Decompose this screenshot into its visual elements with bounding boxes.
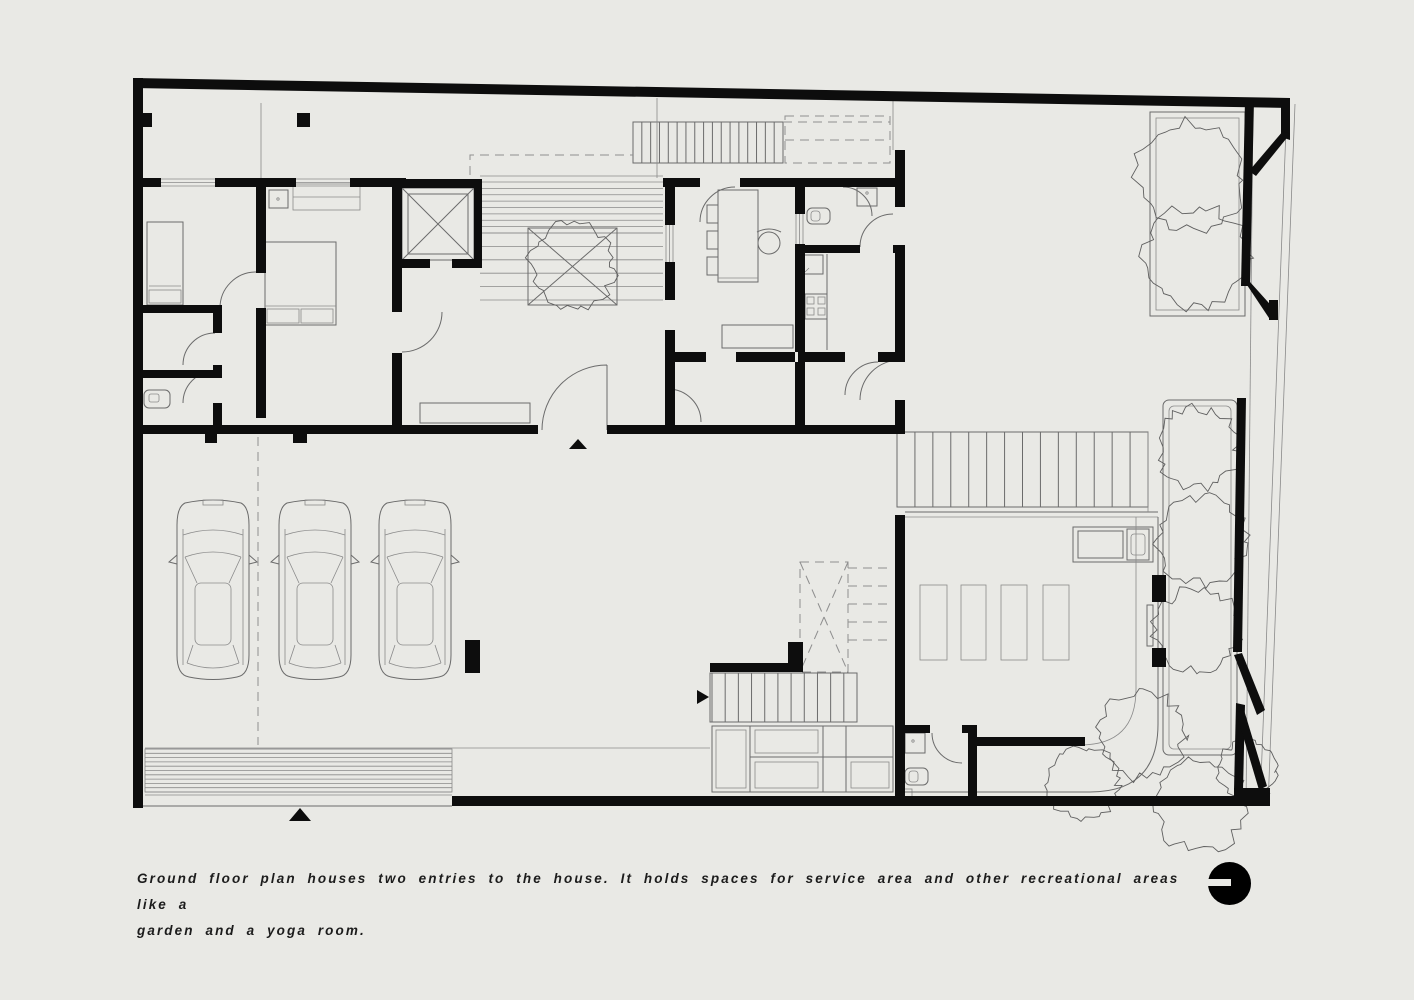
caption-line-2: garden and a yoga room. xyxy=(137,918,1197,944)
garden-tree xyxy=(1096,689,1189,783)
courtyard-pergola-band-b xyxy=(480,233,663,300)
floor-plan-sheet: Ground floor plan houses two entries to … xyxy=(0,0,1414,1000)
garden-tree xyxy=(1131,117,1242,234)
garden-tree xyxy=(1045,746,1122,821)
caption: Ground floor plan houses two entries to … xyxy=(137,866,1197,944)
living-bench xyxy=(420,403,530,423)
toilet xyxy=(807,208,830,224)
interior-walls xyxy=(133,113,1166,800)
washbasin-left xyxy=(144,390,170,408)
entry-arrow-side xyxy=(697,690,709,704)
sliding-door-leaf xyxy=(1147,605,1153,646)
floor-plan-drawing xyxy=(0,0,1414,1000)
kitchen xyxy=(803,254,827,350)
yoga-room xyxy=(920,527,1153,660)
bathroom-top xyxy=(807,188,877,224)
markers xyxy=(289,439,709,821)
entry-arrow-main xyxy=(569,439,587,449)
chair xyxy=(707,205,718,223)
top-staircase-treads xyxy=(633,122,783,163)
courtyard-tree xyxy=(525,221,618,310)
car-3 xyxy=(371,500,459,680)
north-arrow xyxy=(289,808,311,821)
car-1 xyxy=(169,500,257,680)
caption-line-1: Ground floor plan houses two entries to … xyxy=(137,866,1197,918)
hall-steps-band xyxy=(897,432,1148,507)
sofa-bench xyxy=(722,325,793,348)
garage-column xyxy=(465,640,480,673)
office-chair xyxy=(757,229,781,254)
stove xyxy=(805,294,827,319)
treadmill xyxy=(1073,527,1153,562)
studio-logo-circle-icon xyxy=(1208,862,1251,905)
yoga-mat xyxy=(1001,585,1027,660)
closet xyxy=(293,184,360,210)
storage-cabinets xyxy=(712,726,893,792)
yoga-mat xyxy=(1043,585,1069,660)
yoga-mat xyxy=(961,585,986,660)
chair xyxy=(707,231,718,249)
car-2 xyxy=(271,500,359,680)
dining-table xyxy=(707,190,758,282)
bathroom-bottom xyxy=(904,733,928,797)
courtyard xyxy=(528,228,617,305)
single-bed xyxy=(147,222,183,305)
garden-tree xyxy=(1158,403,1240,491)
chair xyxy=(707,257,718,275)
logo-slot xyxy=(1202,879,1231,886)
yoga-mat xyxy=(920,585,947,660)
entry-deck-stripes xyxy=(145,749,452,792)
bottom-staircase-treads xyxy=(712,673,857,722)
shaft xyxy=(402,188,474,260)
nightstand xyxy=(269,190,288,208)
double-bed xyxy=(265,242,336,325)
sink xyxy=(857,188,877,206)
courtyard-pergola-band-a xyxy=(480,182,663,233)
sink xyxy=(905,733,925,753)
toilet xyxy=(905,768,928,785)
band-edges xyxy=(143,122,1158,806)
